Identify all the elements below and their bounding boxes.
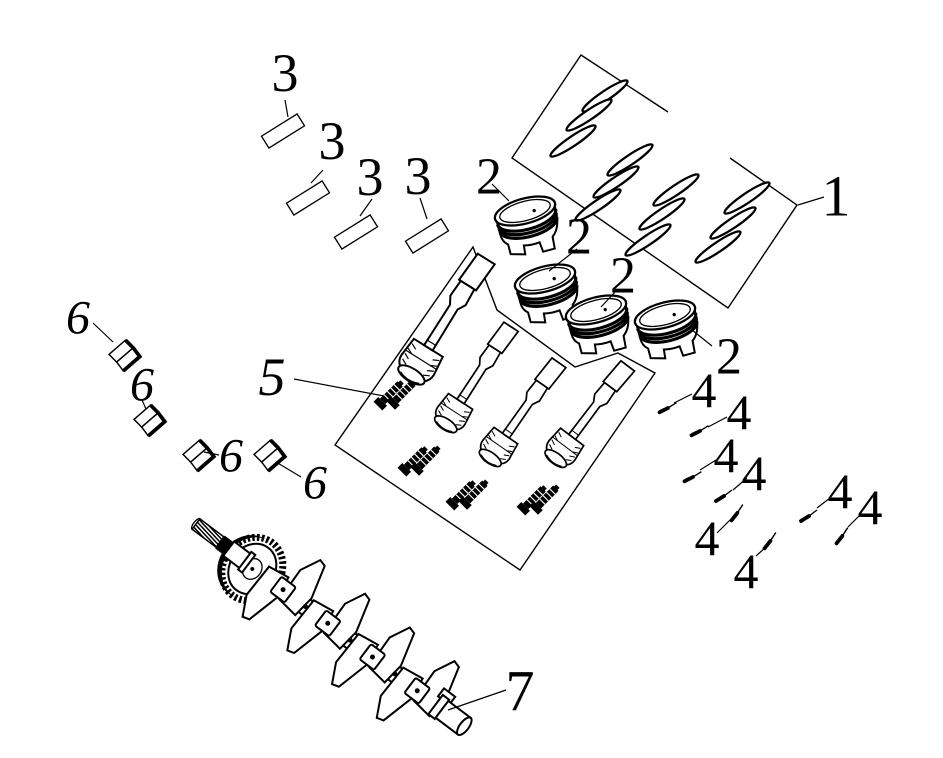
crankshaft: [166, 486, 495, 758]
callout-circlip: 4: [714, 427, 739, 483]
callout-ring-set: 1: [822, 164, 851, 229]
callout-piston-pin: 3: [357, 147, 384, 207]
callout-piston-pin: 3: [272, 43, 299, 103]
circlip: [801, 510, 817, 521]
bearing-shell: [254, 440, 285, 471]
callout-piston: 2: [476, 149, 502, 206]
callout-piston: 2: [716, 329, 742, 386]
piston-pin: [286, 181, 329, 215]
leader-line: [448, 690, 506, 710]
callout-circlip: 4: [692, 362, 717, 418]
leader-line: [708, 417, 727, 427]
pistons: [492, 191, 707, 366]
piston: [492, 191, 567, 262]
callout-circlip: 4: [695, 510, 720, 566]
leader-line: [294, 379, 384, 396]
piston-pin: [334, 215, 377, 249]
callout-rod-assembly: 5: [259, 347, 286, 407]
rod-bolt-pair: [517, 476, 563, 522]
callout-circlip: 4: [742, 445, 767, 501]
rod-bolt-pair: [446, 471, 492, 517]
circlip: [692, 424, 709, 436]
callout-bearing-shell: 6: [130, 359, 154, 412]
piston: [632, 295, 707, 366]
connecting-rod: [429, 317, 523, 438]
piston-pin: [261, 114, 304, 148]
callout-crankshaft: 7: [506, 659, 535, 724]
callout-circlip: 4: [828, 463, 853, 519]
callout-piston: 2: [566, 209, 592, 266]
parts-diagram-page: 1 2 2 2 2 3 3 3 3 4 4 4 4 4 4 4 4 5 6 6 …: [0, 0, 943, 758]
bearing-shell: [183, 440, 214, 471]
circlip: [716, 490, 732, 501]
leader-line: [674, 394, 692, 403]
callout-piston-pin: 3: [319, 111, 346, 171]
callout-bearing-shell: 6: [219, 430, 243, 483]
spline-shaft: [192, 519, 224, 547]
callout-circlip: 4: [734, 543, 759, 599]
callout-bearing-shell: 6: [303, 457, 327, 510]
exploded-parts-diagram: 1 2 2 2 2 3 3 3 3 4 4 4 4 4 4 4 4 5 6 6 …: [0, 0, 943, 758]
leader-line: [798, 197, 824, 205]
callout-circlip: 4: [858, 479, 883, 535]
callout-piston: 2: [610, 248, 636, 305]
circlip: [833, 528, 852, 544]
leader-line: [276, 462, 301, 477]
callout-piston-pin: 3: [405, 146, 432, 206]
circlip: [728, 505, 747, 521]
rod-bolt-pair: [398, 437, 444, 483]
circlip: [761, 533, 780, 549]
circlip: [660, 401, 677, 413]
piston-pin: [405, 219, 448, 253]
callout-bearing-shell: 6: [66, 292, 90, 345]
circlip: [685, 470, 702, 482]
leader-line: [93, 323, 113, 342]
